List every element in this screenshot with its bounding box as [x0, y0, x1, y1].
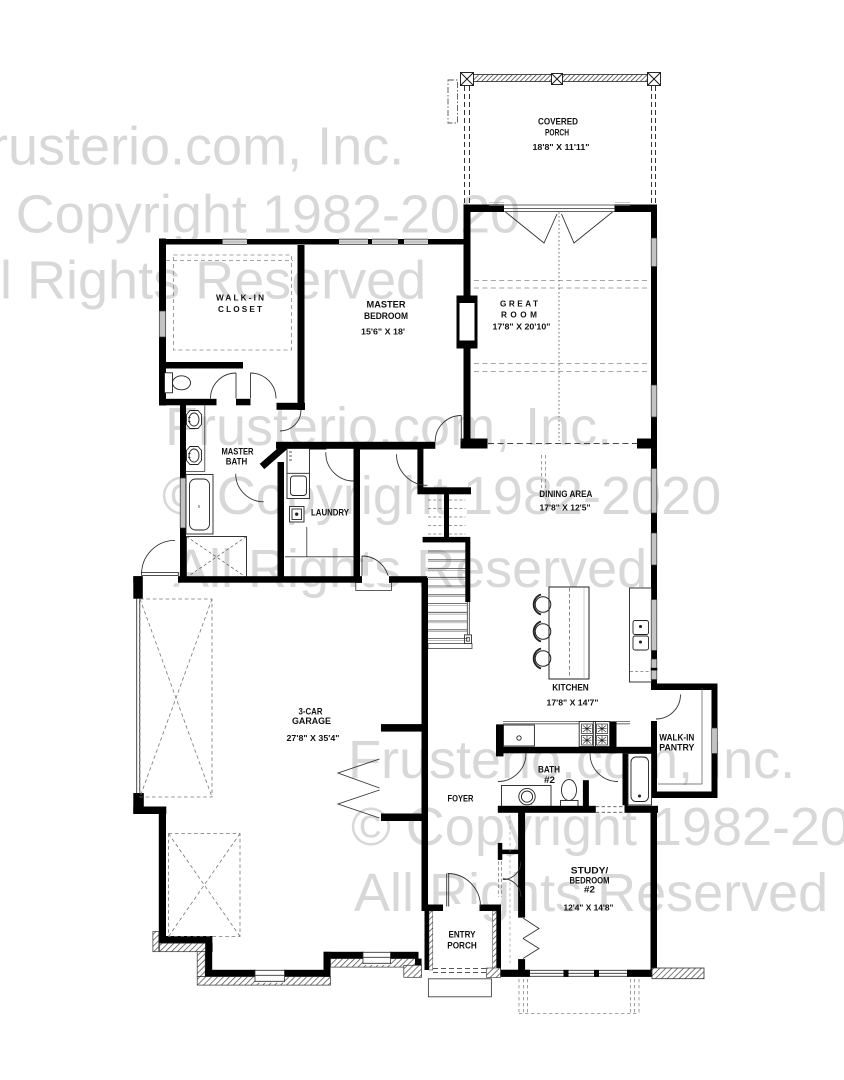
- svg-text:17'8" X 12'5": 17'8" X 12'5": [540, 503, 591, 513]
- svg-text:27'8" X 35'4": 27'8" X 35'4": [287, 733, 340, 743]
- svg-text:#2: #2: [584, 885, 595, 895]
- svg-text:WALK-IN: WALK-IN: [659, 733, 694, 743]
- svg-text:GREAT: GREAT: [500, 300, 538, 309]
- svg-text:17'8" X 14'7": 17'8" X 14'7": [547, 698, 599, 708]
- svg-text:#2: #2: [544, 775, 555, 785]
- svg-text:FOYER: FOYER: [448, 794, 475, 804]
- svg-text:BATH: BATH: [538, 765, 560, 775]
- svg-text:15'6" X 18': 15'6" X 18': [361, 327, 405, 337]
- svg-text:PANTRY: PANTRY: [659, 743, 694, 753]
- svg-text:BEDROOM: BEDROOM: [364, 311, 408, 321]
- svg-text:Frusterio.com, Inc.: Frusterio.com, Inc.: [0, 117, 404, 177]
- svg-text:DINING AREA: DINING AREA: [539, 489, 593, 499]
- svg-text:© Copyright 1982-2020: © Copyright 1982-2020: [0, 185, 520, 245]
- svg-text:17'8" X 20'10": 17'8" X 20'10": [493, 322, 551, 332]
- svg-text:MASTER: MASTER: [367, 300, 407, 310]
- svg-text:12'4" X 14'8": 12'4" X 14'8": [564, 903, 614, 913]
- svg-text:KITCHEN: KITCHEN: [552, 683, 589, 693]
- svg-text:PORCH: PORCH: [545, 128, 569, 138]
- svg-text:18'8" X 11'11": 18'8" X 11'11": [533, 142, 590, 152]
- svg-text:PORCH: PORCH: [447, 941, 477, 951]
- svg-text:All Rights Reserved: All Rights Reserved: [0, 251, 426, 311]
- svg-text:STUDY/: STUDY/: [571, 866, 609, 876]
- svg-text:LAUNDRY: LAUNDRY: [311, 508, 349, 518]
- svg-text:COVERED: COVERED: [538, 117, 578, 127]
- svg-text:3-CAR: 3-CAR: [299, 707, 324, 717]
- svg-text:GARAGE: GARAGE: [292, 716, 331, 726]
- svg-text:MASTER: MASTER: [222, 447, 255, 457]
- svg-text:ENTRY: ENTRY: [449, 930, 476, 940]
- svg-text:© Copyright 1982-2020: © Copyright 1982-2020: [162, 466, 721, 526]
- svg-text:BATH: BATH: [226, 457, 248, 467]
